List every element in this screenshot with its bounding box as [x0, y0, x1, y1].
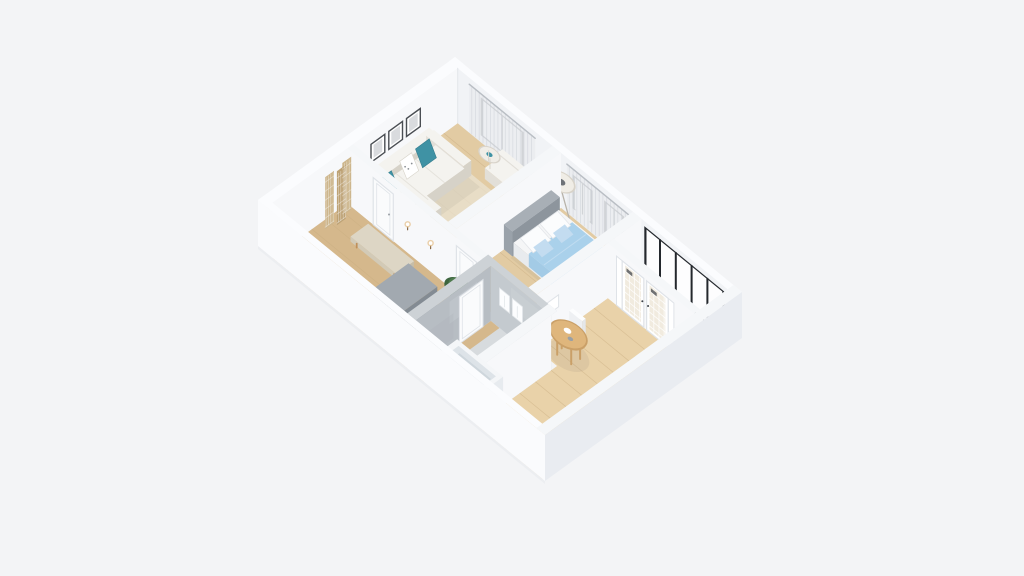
french-door-sidelight [617, 256, 623, 310]
pillow-dot [404, 166, 406, 168]
pillow-dot [407, 168, 409, 170]
render-viewport [0, 0, 1024, 576]
pillow-dot [411, 163, 413, 165]
door-handle [647, 305, 649, 307]
floorplan-3d-view [0, 0, 1024, 576]
door-handle [388, 213, 390, 215]
wall-sconce [406, 222, 410, 226]
wall-sconce [429, 241, 433, 245]
door-handle [641, 300, 643, 302]
